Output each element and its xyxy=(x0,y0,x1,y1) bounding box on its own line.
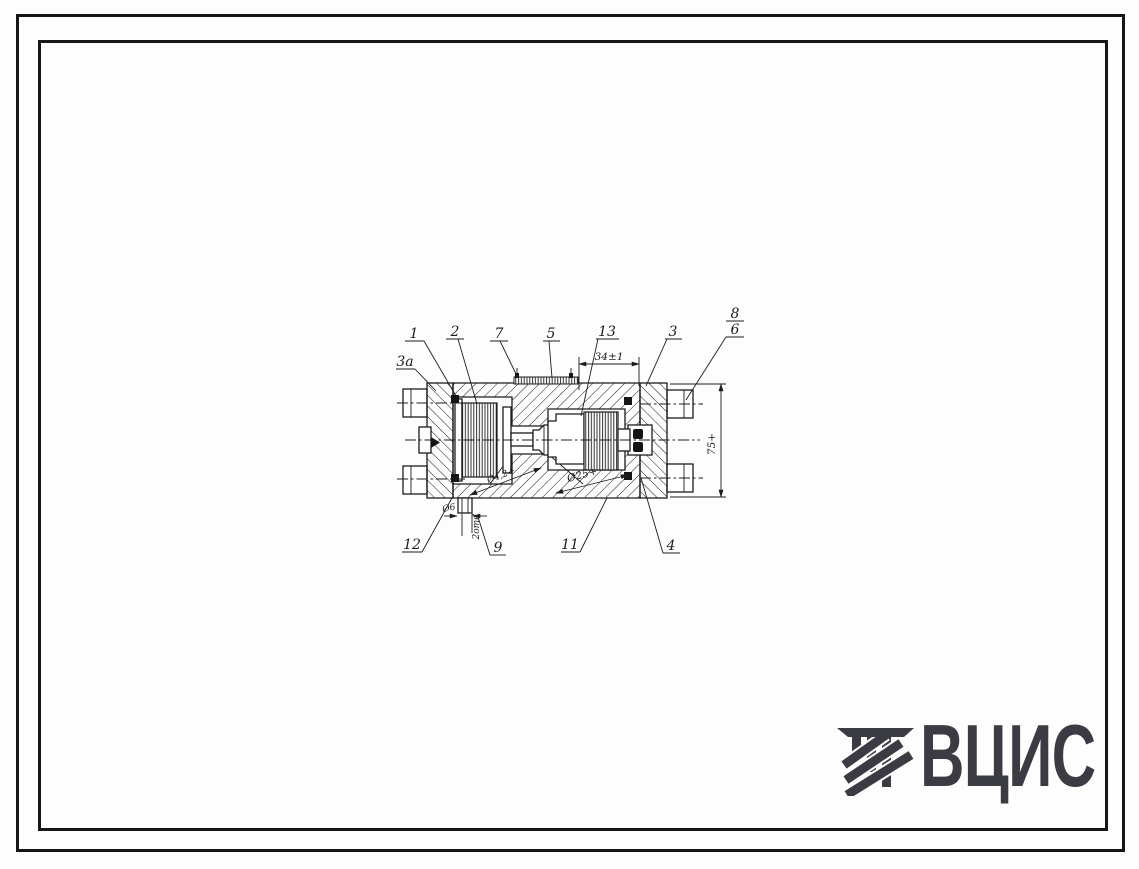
callout-1-label: 1 xyxy=(410,326,419,342)
callout-7-label: 7 xyxy=(495,326,504,342)
callout-9-label: 9 xyxy=(494,540,503,556)
callout-6: 6 xyxy=(686,322,744,400)
callout-3a-label: 3а xyxy=(396,354,413,370)
scanned-drawing-page: 34±1 75+ Ø25+ Ø4,2+ Ø6 2отв 1 xyxy=(0,0,1139,869)
callout-4-label: 4 xyxy=(666,538,676,554)
bottom-boss xyxy=(458,498,472,536)
poppet-seal-lower xyxy=(633,442,643,452)
callout-7: 7 xyxy=(490,326,518,378)
vcis-logo-mark-icon xyxy=(836,727,914,796)
callout-5-label: 5 xyxy=(547,326,556,342)
poppet-seal-upper xyxy=(633,429,643,439)
callout-5: 5 xyxy=(543,326,560,378)
callout-3-label: 3 xyxy=(669,324,678,340)
top-cover-strip xyxy=(514,368,578,384)
callout-8-label: 8 xyxy=(731,306,740,322)
callout-6-label: 6 xyxy=(731,322,740,338)
callout-2-label: 2 xyxy=(450,324,460,340)
bolt-head-bottom-left xyxy=(403,466,427,494)
dimension-hole-count-label: 2отв xyxy=(472,515,482,541)
vcis-logo-text: ВЦИС xyxy=(920,720,1095,792)
valve-block xyxy=(548,414,584,464)
callout-13-label: 13 xyxy=(598,324,616,340)
callout-3: 3 xyxy=(646,324,682,386)
dimension-width-top-label: 34±1 xyxy=(595,351,624,363)
callout-11: 11 xyxy=(561,498,607,553)
callout-8: 8 xyxy=(726,306,744,322)
spring-stack-right xyxy=(584,412,630,470)
vcis-logo: ВЦИС xyxy=(836,720,1139,800)
callout-9: 9 xyxy=(478,517,506,556)
dimension-height-right-label: 75+ xyxy=(706,433,718,455)
callout-12-label: 12 xyxy=(403,537,421,553)
callout-11-label: 11 xyxy=(561,537,579,553)
